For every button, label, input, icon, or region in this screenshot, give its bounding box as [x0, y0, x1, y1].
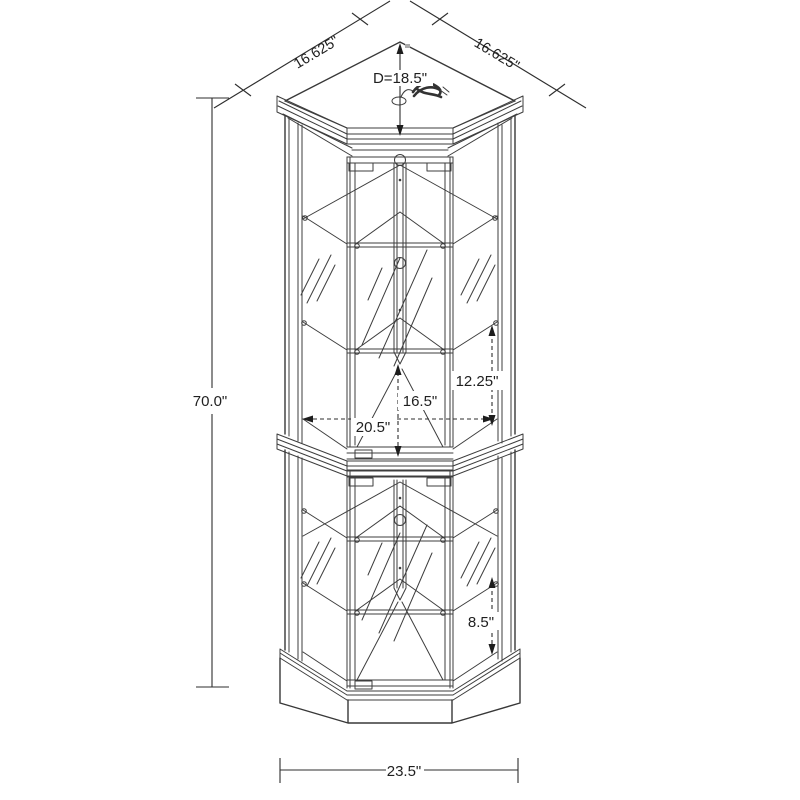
cabinet-line-drawing: 16.625" 16.625" D=18.5" 70.0" 12.25" 16.…: [0, 0, 800, 800]
dim-label-top-left-width: 16.625": [291, 33, 342, 72]
dim-label-overall-height: 70.0": [193, 393, 228, 410]
back-corner-post-upper: [394, 155, 406, 365]
dim-lower-shelf-spacing: 8.5": [463, 577, 499, 655]
upper-door: [347, 157, 453, 459]
dim-overall-height: 70.0": [193, 98, 229, 687]
dim-base-width: 23.5": [280, 758, 518, 783]
dim-interior-width: 20.5": [302, 416, 494, 437]
dim-upper-shelf-spacing: 12.25": [451, 325, 503, 426]
dim-label-top-right-width: 16.625": [471, 35, 522, 74]
upper-glass-shelves: [302, 212, 499, 449]
lower-glass-shelves: [302, 506, 499, 681]
dim-label-interior-width: 20.5": [356, 419, 391, 436]
dim-label-lower-shelf-spacing: 8.5": [468, 614, 494, 631]
dim-label-upper-shelf-spacing: 12.25": [456, 373, 499, 390]
cabinet-dimension-diagram: 16.625" 16.625" D=18.5" 70.0" 12.25" 16.…: [0, 0, 800, 800]
dim-label-base-width: 23.5": [387, 763, 422, 780]
back-wall-edges: [303, 165, 497, 536]
dim-label-interior-depth: 16.5": [403, 393, 438, 410]
dim-label-depth: D=18.5": [373, 70, 427, 87]
dim-interior-depth: 16.5": [395, 364, 443, 457]
